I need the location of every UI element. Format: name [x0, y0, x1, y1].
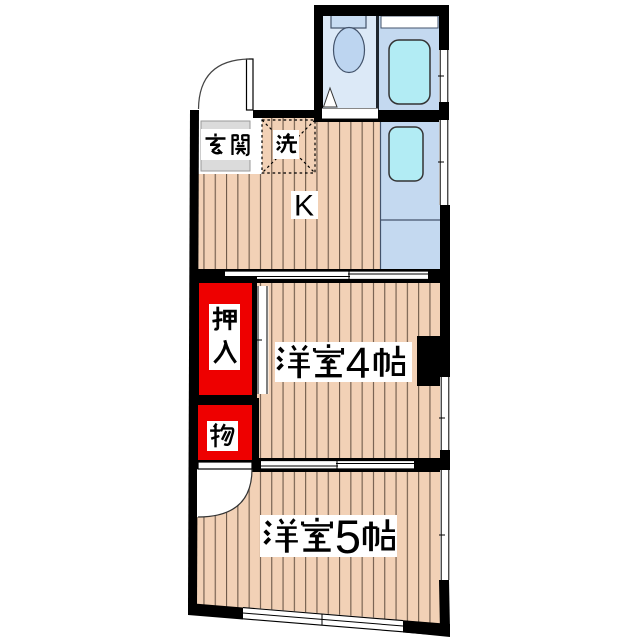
- svg-text:5: 5: [335, 510, 361, 563]
- svg-text:4: 4: [346, 339, 370, 388]
- svg-text:K: K: [294, 190, 314, 223]
